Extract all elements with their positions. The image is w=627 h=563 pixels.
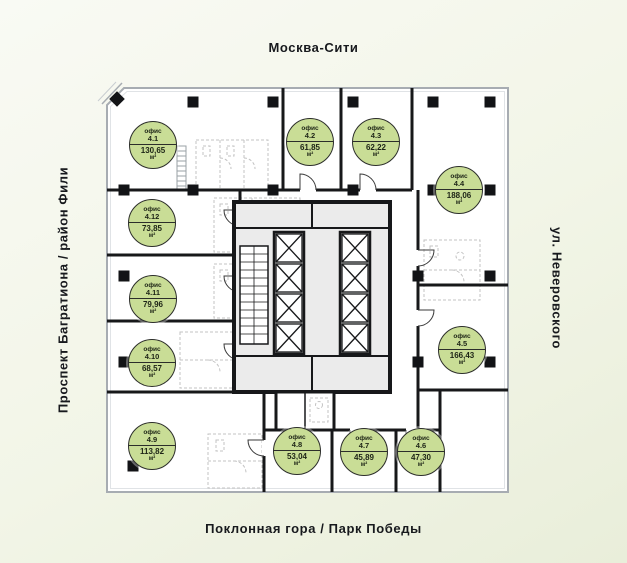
office-badge-title: офис4.7 [341, 429, 387, 452]
office-badge-area: 166,43м² [439, 350, 485, 373]
office-number: 4.2 [287, 132, 333, 140]
office-number: 4.9 [129, 436, 175, 444]
office-badge-area: 130,65м² [130, 145, 176, 168]
office-area-value: 166,43 [439, 352, 485, 361]
office-area-value: 73,85 [129, 225, 175, 234]
office-badge-4.9[interactable]: офис4.9113,82м² [128, 422, 176, 470]
office-badge-4.4[interactable]: офис4.4188,06м² [435, 166, 483, 214]
office-badge-title: офис4.9 [129, 423, 175, 446]
office-badge-area: 62,22м² [353, 142, 399, 165]
floor-plan-svg [0, 0, 627, 563]
office-number: 4.1 [130, 135, 176, 143]
office-area-unit: м² [129, 456, 175, 463]
office-badge-title: офис4.3 [353, 119, 399, 142]
office-number: 4.11 [130, 289, 176, 297]
office-badge-title: офис4.8 [274, 428, 320, 451]
office-badge-4.1[interactable]: офис4.1130,65м² [129, 121, 177, 169]
office-badge-4.3[interactable]: офис4.362,22м² [352, 118, 400, 166]
office-badge-title: офис4.10 [129, 340, 175, 363]
office-badge-title: офис4.4 [436, 167, 482, 190]
office-badge-title: офис4.12 [129, 200, 175, 223]
office-area-value: 45,89 [341, 454, 387, 463]
office-badge-4.6[interactable]: офис4.647,30м² [397, 428, 445, 476]
office-badge-title: офис4.1 [130, 122, 176, 145]
office-area-unit: м² [353, 152, 399, 159]
office-badge-4.12[interactable]: офис4.1273,85м² [128, 199, 176, 247]
office-badge-4.10[interactable]: офис4.1068,57м² [128, 339, 176, 387]
office-badge-4.5[interactable]: офис4.5166,43м² [438, 326, 486, 374]
office-number: 4.8 [274, 441, 320, 449]
office-area-unit: м² [274, 461, 320, 468]
office-area-value: 53,04 [274, 453, 320, 462]
office-badge-4.7[interactable]: офис4.745,89м² [340, 428, 388, 476]
office-badge-area: 79,96м² [130, 299, 176, 322]
floorplan-page: Москва-Сити Поклонная гора / Парк Победы… [0, 0, 627, 563]
office-number: 4.3 [353, 132, 399, 140]
office-badge-area: 68,57м² [129, 363, 175, 386]
office-area-unit: м² [287, 152, 333, 159]
office-badge-title: офис4.6 [398, 429, 444, 452]
office-badge-area: 73,85м² [129, 223, 175, 246]
office-badge-area: 45,89м² [341, 452, 387, 475]
office-number: 4.4 [436, 180, 482, 188]
office-badge-title: офис4.2 [287, 119, 333, 142]
office-area-value: 113,82 [129, 448, 175, 457]
office-badge-area: 188,06м² [436, 190, 482, 213]
office-area-unit: м² [129, 373, 175, 380]
office-badge-title: офис4.5 [439, 327, 485, 350]
office-area-value: 68,57 [129, 365, 175, 374]
office-area-value: 62,22 [353, 144, 399, 153]
office-badge-area: 53,04м² [274, 451, 320, 474]
office-badge-4.8[interactable]: офис4.853,04м² [273, 427, 321, 475]
office-area-unit: м² [439, 360, 485, 367]
office-area-value: 188,06 [436, 192, 482, 201]
office-area-value: 130,65 [130, 147, 176, 156]
office-number: 4.5 [439, 340, 485, 348]
office-badge-title: офис4.11 [130, 276, 176, 299]
office-badge-area: 113,82м² [129, 446, 175, 469]
office-area-unit: м² [130, 309, 176, 316]
office-badge-4.11[interactable]: офис4.1179,96м² [129, 275, 177, 323]
office-area-unit: м² [130, 155, 176, 162]
vestibule [276, 392, 334, 430]
stairs-icon [240, 246, 268, 344]
office-area-unit: м² [129, 233, 175, 240]
office-area-unit: м² [436, 200, 482, 207]
office-badge-4.2[interactable]: офис4.261,85м² [286, 118, 334, 166]
office-badge-area: 47,30м² [398, 452, 444, 475]
core [234, 202, 390, 392]
office-number: 4.10 [129, 353, 175, 361]
office-area-value: 79,96 [130, 301, 176, 310]
office-area-value: 61,85 [287, 144, 333, 153]
office-number: 4.6 [398, 442, 444, 450]
office-number: 4.7 [341, 442, 387, 450]
office-number: 4.12 [129, 213, 175, 221]
office-badge-area: 61,85м² [287, 142, 333, 165]
office-area-unit: м² [341, 462, 387, 469]
office-area-value: 47,30 [398, 454, 444, 463]
office-area-unit: м² [398, 462, 444, 469]
